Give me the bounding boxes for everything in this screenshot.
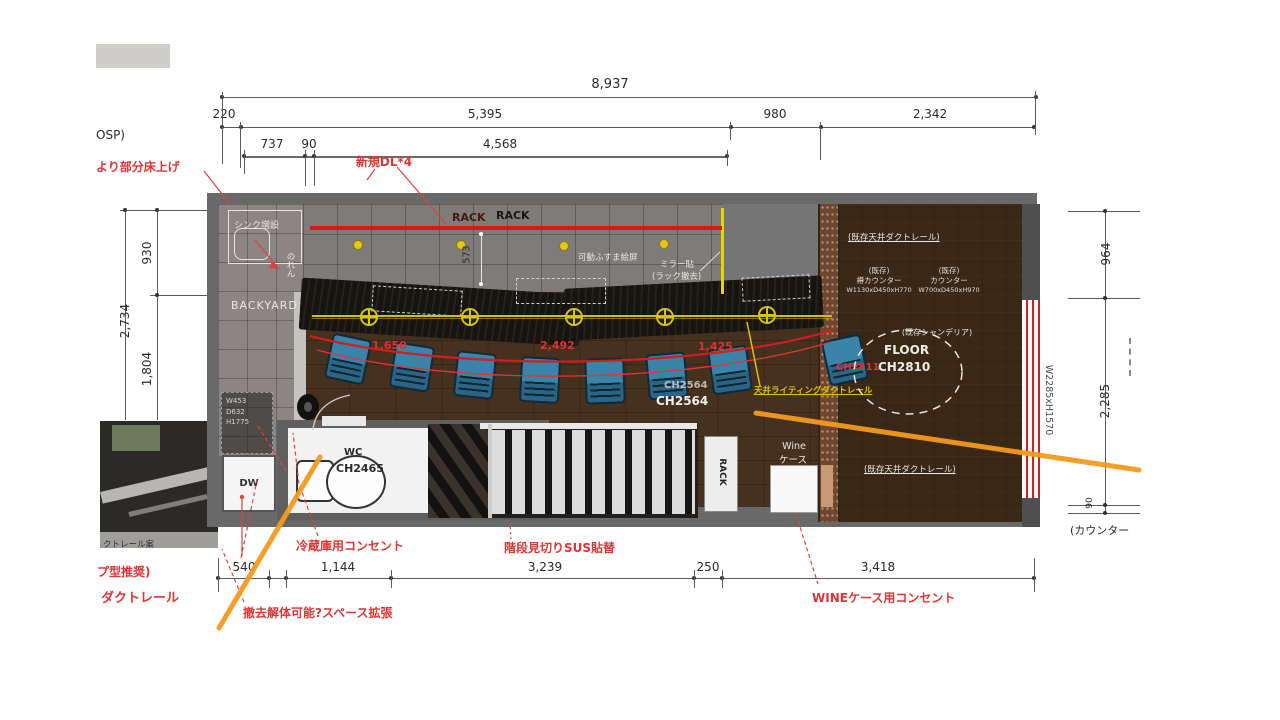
slat-wall-accent — [821, 465, 833, 507]
downlight-dot — [353, 240, 363, 250]
pendant-light-symbol — [656, 308, 674, 326]
dim-tick — [155, 293, 159, 297]
label-duct-top: (既存天井ダクトレール) — [848, 231, 940, 243]
wc-ch-label: CH2465 — [336, 462, 384, 475]
dim-2285: 2,285 — [1098, 378, 1112, 424]
dim-573-line — [481, 234, 482, 284]
label-floor-ch: CH2810 — [878, 360, 930, 374]
dim-980: 980 — [740, 107, 810, 121]
shelf-unit: W453 D632 H1775 — [221, 392, 273, 454]
dim-ext — [730, 122, 731, 140]
dim-ext — [391, 570, 392, 588]
dim-tick — [155, 208, 159, 212]
label-counter: カウンター — [910, 276, 988, 286]
dim-ext — [244, 150, 245, 174]
wine-case-box — [770, 465, 818, 513]
wc-door-threshold — [322, 416, 366, 426]
bar-chair — [519, 356, 561, 404]
dim-930: 930 — [140, 234, 154, 272]
dishwasher-label: DW — [239, 478, 258, 489]
label-taru-counter: 樽カウンター — [840, 276, 918, 286]
label-counter-group: (既存) カウンター W700xD450xH970 — [910, 266, 988, 295]
shelf-size-w: W453 — [226, 396, 272, 407]
label-window-size: W2285xH1570 — [1042, 350, 1054, 450]
dim-tick — [1103, 209, 1107, 213]
label-lighting-duct: 天井ライティングダクトレール — [754, 384, 872, 396]
label-rack-a: RACK — [452, 211, 486, 224]
label-mirror-2: (ラック撤去) — [652, 270, 701, 282]
label-ch-red: CH2811 — [836, 362, 880, 373]
label-counter-size: W700xD450xH970 — [910, 286, 988, 295]
right-wall-bottom — [1022, 498, 1040, 527]
floorplan-canvas: 8,937 220 5,395 980 2,342 737 90 4,568 O… — [0, 0, 1280, 720]
dim-line — [222, 127, 1034, 128]
label-taru-size: W1130xD450xH770 — [840, 286, 918, 295]
dim-ext — [269, 570, 270, 588]
note-new-dl: 新規DL*4 — [344, 153, 424, 170]
dim-1804: 1,804 — [140, 346, 154, 392]
dim-ext — [218, 558, 219, 592]
label-taru-group: (既存) 樽カウンター W1130xD450xH770 — [840, 266, 918, 295]
dim-ext — [722, 570, 723, 588]
note-stair-sus: 階段見切りSUS貼替 — [504, 539, 615, 556]
label-noren: のれん — [284, 252, 296, 296]
note-duct-reco: プ型推奨) — [97, 563, 151, 580]
note-wine-outlet: WINEケース用コンセント — [812, 589, 955, 606]
label-ch2564-b: CH2564 — [656, 394, 708, 408]
photo-caption-band: クトレール案 — [100, 532, 218, 548]
dim-ext — [314, 150, 315, 186]
note-counter-cut: (カウンター — [1070, 522, 1129, 538]
label-backyard: BACKYARD — [231, 299, 298, 312]
dim-ext — [727, 150, 728, 166]
demolish-leader — [222, 549, 244, 602]
dim-540: 540 — [220, 560, 268, 574]
reference-photo: クトレール案 — [100, 421, 218, 548]
label-mirror-1: ミラー貼 — [660, 258, 694, 270]
pendant-light-symbol — [360, 308, 378, 326]
dim-tick — [479, 232, 483, 236]
corner-gray-block — [96, 44, 170, 68]
shelf-size-d: D632 — [226, 407, 272, 418]
dim-964: 964 — [1099, 234, 1113, 274]
column-object-core — [304, 402, 312, 412]
dash-mark — [1129, 338, 1131, 376]
rack-cabinet-label: RACK — [715, 442, 727, 502]
counter-fixture-box — [371, 285, 462, 316]
dim-tick — [479, 282, 483, 286]
dim-line — [222, 97, 1037, 98]
dim-line — [157, 210, 158, 420]
pendant-light-symbol — [461, 308, 479, 326]
dim-line — [218, 578, 1034, 579]
note-demolish: 撤去解体可能?スペース拡張 — [243, 604, 393, 621]
dim-3418: 3,418 — [833, 560, 923, 574]
stairs-side-rail — [488, 424, 492, 518]
dim-573: 573 — [462, 240, 473, 270]
mirror-line — [721, 208, 724, 294]
dim-ext — [222, 92, 223, 164]
dim-tick — [123, 208, 127, 212]
label-duct-bottom: (既存天井ダクトレール) — [864, 463, 956, 475]
dim-90-small: 90 — [1085, 491, 1095, 515]
downlight-dot — [659, 239, 669, 249]
dim-220: 220 — [206, 107, 242, 121]
new-dl-leader2 — [367, 169, 375, 180]
dim-ext — [286, 570, 287, 588]
counter-fixture-box — [516, 278, 606, 304]
photo-duct-beam2 — [128, 494, 207, 517]
note-floor-raise: より部分床上げ — [96, 158, 180, 175]
photo-green-area — [112, 425, 160, 451]
photo-caption: クトレール案 — [100, 540, 154, 548]
dim-tick — [1103, 296, 1107, 300]
dim-ext — [1035, 91, 1036, 135]
label-chandelier: (既存シャンデリア) — [882, 327, 992, 338]
note-fridge-outlet: 冷蔵庫用コンセント — [296, 537, 404, 554]
dim-5395: 5,395 — [440, 107, 530, 121]
dim-2734: 2,734 — [118, 298, 132, 344]
dishwasher-box: DW — [222, 455, 276, 512]
dim-ext — [240, 122, 241, 168]
label-ch2564-a: CH2564 — [664, 380, 708, 391]
shelf-size-h: H1775 — [226, 417, 272, 428]
label-fusuma: 可動ふすま絵屏 — [578, 251, 638, 263]
note-osp: OSP) — [96, 128, 125, 142]
dim-ext — [305, 150, 306, 186]
dim-line — [244, 156, 728, 158]
stairs-top-edge — [480, 423, 697, 429]
stairs-diagonal — [428, 424, 490, 518]
bar-chair — [584, 357, 626, 404]
dim-4568: 4,568 — [470, 137, 530, 151]
pendant-light-symbol — [758, 306, 776, 324]
label-sink-add: シンク増設 — [234, 218, 279, 231]
dim-ext — [820, 122, 821, 160]
right-wall-mirror — [1022, 300, 1040, 498]
dim-ext — [694, 570, 695, 588]
downlight-dot — [559, 241, 569, 251]
dim-737: 737 — [252, 137, 292, 151]
dim-span-2492: 2,492 — [540, 339, 575, 352]
wine-label-1: Wine — [768, 441, 820, 452]
counter-fixture-box — [741, 274, 810, 302]
wine-label-2: ケース — [764, 452, 822, 466]
right-wall-top — [1022, 204, 1040, 300]
wc-label: WC — [344, 447, 362, 458]
dim-90: 90 — [294, 137, 324, 151]
dim-span-1650: 1,650 — [372, 339, 407, 352]
pendant-light-symbol — [565, 308, 583, 326]
label-exist-a: (既存) — [840, 266, 918, 276]
label-exist-b: (既存) — [910, 266, 988, 276]
dim-tick — [1103, 503, 1107, 507]
dim-3239: 3,239 — [500, 560, 590, 574]
label-floor: FLOOR — [884, 343, 929, 357]
sink-basin — [234, 228, 270, 260]
note-duct-rail: ダクトレール — [101, 587, 179, 606]
label-rack-b: RACK — [496, 209, 530, 222]
stairs-treads — [492, 430, 695, 514]
dim-span-1425: 1,425 — [698, 340, 733, 353]
dim-1144: 1,144 — [300, 560, 376, 574]
dim-2342: 2,342 — [885, 107, 975, 121]
dim-overall-width: 8,937 — [560, 77, 660, 92]
dim-tick — [1103, 511, 1107, 515]
dim-ext — [1034, 558, 1035, 592]
bar-chair — [453, 350, 498, 400]
